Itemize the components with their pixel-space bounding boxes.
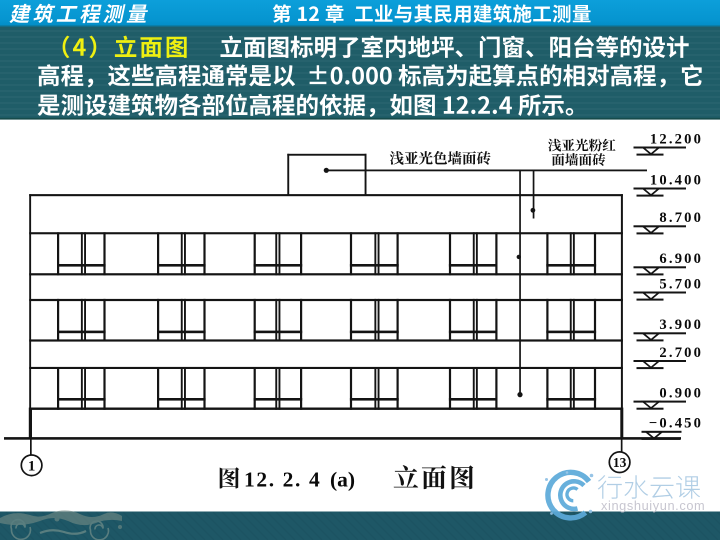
svg-text:8.700: 8.700 — [659, 210, 703, 226]
svg-text:xingshuiyun.com: xingshuiyun.com — [601, 498, 705, 513]
svg-text:(a): (a) — [330, 468, 355, 492]
svg-text:2.700: 2.700 — [659, 345, 703, 361]
svg-text:12.200: 12.200 — [650, 131, 703, 147]
svg-text:1: 1 — [28, 459, 36, 475]
svg-text:0.900: 0.900 — [659, 385, 703, 401]
svg-text:5.700: 5.700 — [659, 276, 703, 292]
svg-text:3.900: 3.900 — [659, 317, 703, 333]
svg-text:12. 2. 4: 12. 2. 4 — [244, 468, 321, 492]
svg-text:6.900: 6.900 — [659, 251, 703, 267]
svg-text:10.400: 10.400 — [650, 172, 703, 188]
svg-text:−0.450: −0.450 — [649, 416, 703, 432]
svg-text:13: 13 — [613, 455, 627, 470]
